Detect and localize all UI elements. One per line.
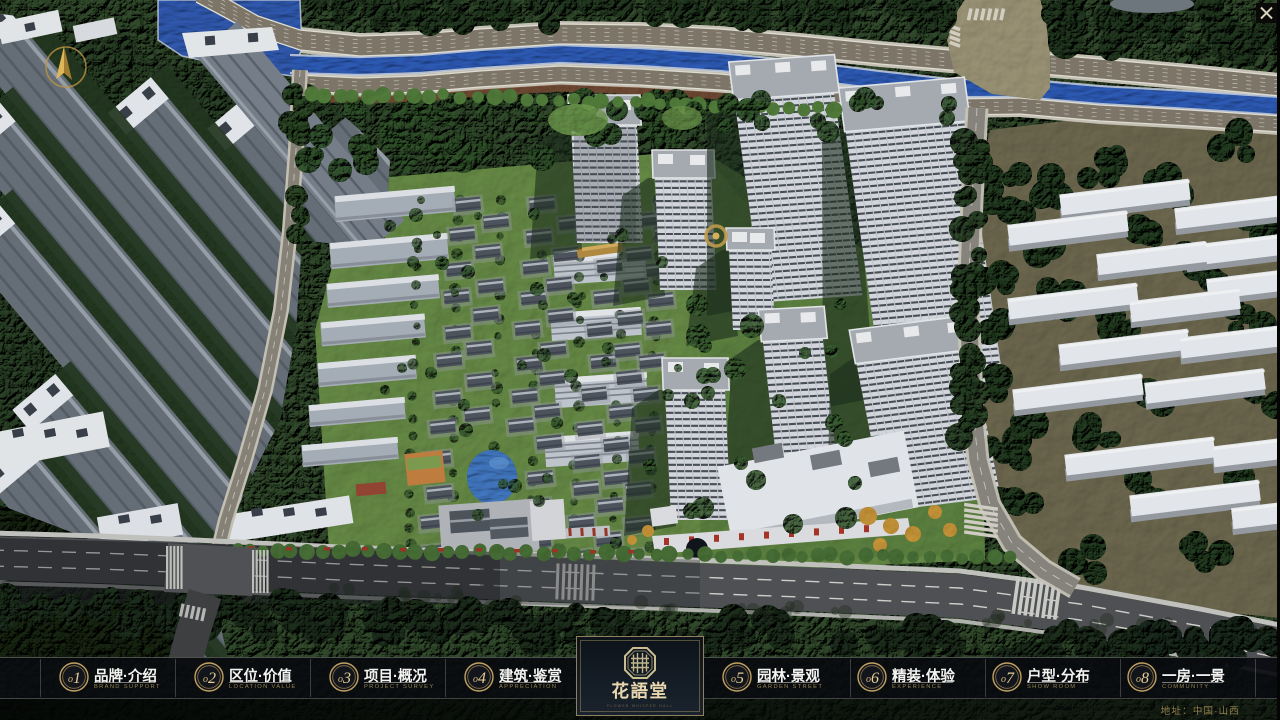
svg-text:3: 3 (342, 670, 351, 687)
svg-text:FLOWER WHISPER HALL: FLOWER WHISPER HALL (607, 704, 673, 708)
svg-text:1: 1 (73, 670, 81, 687)
svg-text:8: 8 (1141, 670, 1149, 687)
svg-text:5: 5 (736, 670, 744, 687)
svg-text:6: 6 (871, 670, 879, 687)
svg-text:4: 4 (478, 670, 486, 687)
svg-text:7: 7 (1006, 670, 1015, 687)
svg-text:花語堂: 花語堂 (612, 681, 669, 701)
svg-text:2: 2 (208, 670, 216, 687)
